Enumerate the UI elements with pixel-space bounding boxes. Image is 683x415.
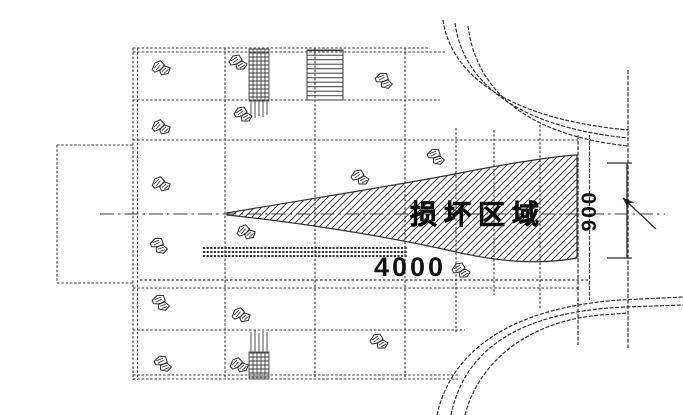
bottom-wing-wall-curves bbox=[437, 297, 683, 415]
grid-top-edge bbox=[133, 48, 445, 52]
dim-width-label: 900 bbox=[578, 190, 601, 231]
top-wing-wall-curves bbox=[443, 20, 628, 146]
rock-symbol bbox=[452, 263, 470, 277]
dim-length-label: 4000 bbox=[374, 252, 446, 282]
damaged-area-label: 损坏区域 bbox=[410, 200, 546, 230]
blueprint-page: 4000 900 损坏区域 bbox=[0, 0, 683, 415]
grid-bottom-edge bbox=[133, 375, 460, 379]
rock-symbol bbox=[374, 71, 395, 88]
plan-drawing: 4000 900 损坏区域 bbox=[0, 0, 683, 415]
top-slot-mesh bbox=[249, 49, 269, 101]
rock-symbol bbox=[229, 55, 247, 69]
rock-symbol bbox=[151, 175, 172, 192]
rock-symbol bbox=[234, 107, 252, 121]
rock-symbol bbox=[151, 59, 172, 76]
rock-symbol bbox=[151, 293, 172, 310]
rock-symbol bbox=[151, 118, 172, 135]
right-wall-pair bbox=[578, 135, 590, 345]
rock-symbol bbox=[351, 170, 369, 184]
rock-symbol bbox=[149, 236, 170, 253]
rock-symbol bbox=[236, 223, 257, 240]
top-slot-tails bbox=[251, 101, 267, 118]
rock-symbol bbox=[153, 354, 174, 371]
rock-symbol bbox=[229, 356, 250, 373]
bottom-slot-mesh bbox=[249, 352, 269, 379]
left-apron-slab bbox=[57, 145, 133, 283]
ladder-band bbox=[307, 50, 343, 100]
rock-symbol bbox=[426, 147, 447, 164]
bottom-slot-tails bbox=[251, 330, 267, 352]
rock-symbol bbox=[231, 306, 252, 323]
rock-symbol bbox=[370, 334, 388, 348]
